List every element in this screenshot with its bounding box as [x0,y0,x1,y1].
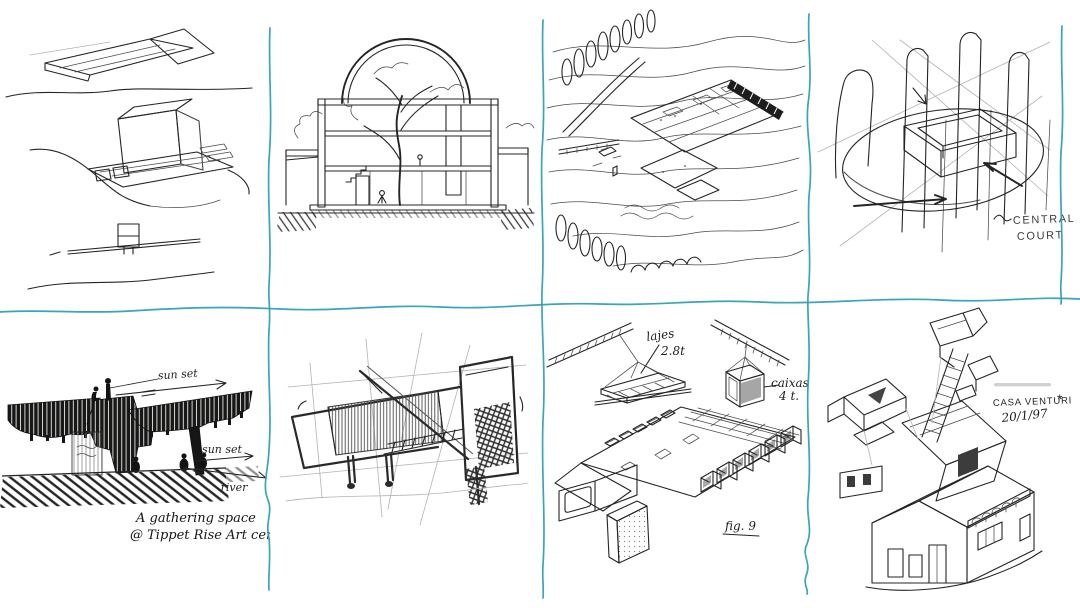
panel-tippet-rise: sun set sun set river A gathering space … [0,305,270,608]
canopy-structure [8,391,252,475]
lajes-label: lajes [645,326,675,344]
court-box [904,109,1016,177]
river-label: river [221,481,249,494]
figure-number-label: fig. 9 [724,519,756,533]
caixas-weight-label: 4 t. [778,389,799,403]
panel-casa-venturi: CASA VENTURI * 20/1/97 [810,305,1080,608]
contour-lines [547,36,805,266]
section-ground [276,208,534,232]
casa-venturi-sketch: CASA VENTURI * 20/1/97 [810,305,1080,608]
site-road [563,58,645,136]
panel-hillside-volumes [0,0,270,305]
river-squiggles [593,147,693,219]
exploded-roof-pieces [902,356,1006,501]
precast-isometric-sketch: lajes 2.8t caixas 4 t. fig. 9 [543,305,810,608]
central-court-label-line1: CENTRAL [1013,213,1076,227]
cantilever-sketch [270,305,543,608]
caption-line2: @ Tippet Rise Art center [130,528,270,543]
figure-underline [723,534,759,536]
building-complex [559,80,783,200]
panel-cantilever-study [270,305,543,608]
fine-print-line [994,383,1051,386]
cantilever-body [292,366,473,468]
sketch-collage: CENTRAL COURT [0,0,1080,608]
sketch-small-elevation [28,224,214,289]
deck-structure [555,407,801,511]
panel-arched-section [270,0,543,305]
right-tower [460,357,518,505]
terraced-site-sketch [543,0,810,305]
court-arrows [854,88,1022,221]
hillside-volumes-sketch [0,0,270,305]
sketch-top-bar-building [6,29,252,97]
arched-section-sketch [270,0,543,305]
panel-terraced-site [543,0,810,305]
left-floating-pieces [828,357,941,498]
casa-venturi-date: 20/1/97 [1000,406,1049,425]
central-court-label-line2: COURT [1017,229,1064,243]
sun-set-top-label: sun set [157,367,198,383]
panel-precast-isometric: lajes 2.8t caixas 4 t. fig. 9 [543,305,810,608]
sun-set-right-label: sun set [202,443,242,456]
house-body [866,466,1042,590]
sketch-mid-box-building [30,99,249,208]
panel-central-court: CENTRAL COURT [810,0,1080,305]
section-structure [286,39,528,210]
casa-venturi-star: * [1057,391,1063,407]
central-court-sketch: CENTRAL COURT [810,0,1080,305]
caption-line1: A gathering space [135,511,256,526]
caixas-label: caixas [771,376,809,390]
lajes-weight-label: 2.8t [660,344,685,358]
tippet-rise-sketch: sun set sun set river A gathering space … [0,305,270,608]
